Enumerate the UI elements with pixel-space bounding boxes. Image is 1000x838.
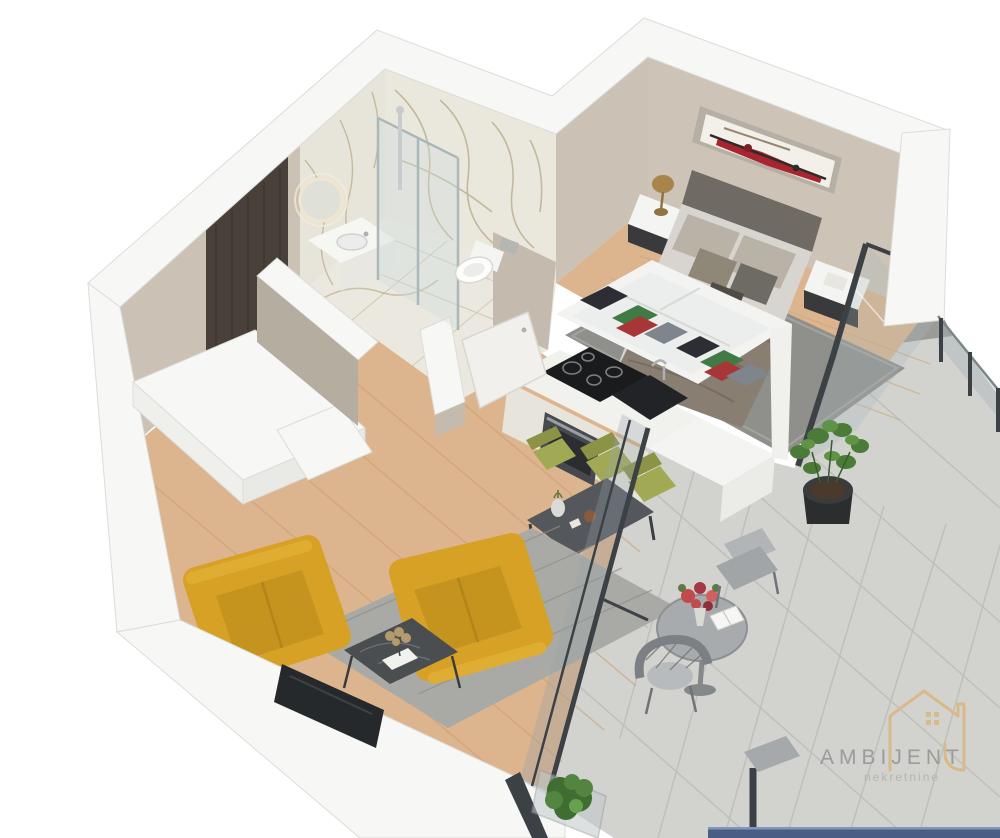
apartment-scene: AMBIJENT nekretnine [0, 0, 1000, 838]
brand-tagline: nekretnine [864, 770, 940, 784]
gold-lamp [652, 175, 674, 193]
brand-name: AMBIJENT [820, 746, 964, 769]
vase [551, 499, 565, 517]
bottom-bar [708, 827, 1000, 838]
floorplan-render: AMBIJENT nekretnine [0, 0, 1000, 838]
round-mirror [300, 179, 342, 221]
